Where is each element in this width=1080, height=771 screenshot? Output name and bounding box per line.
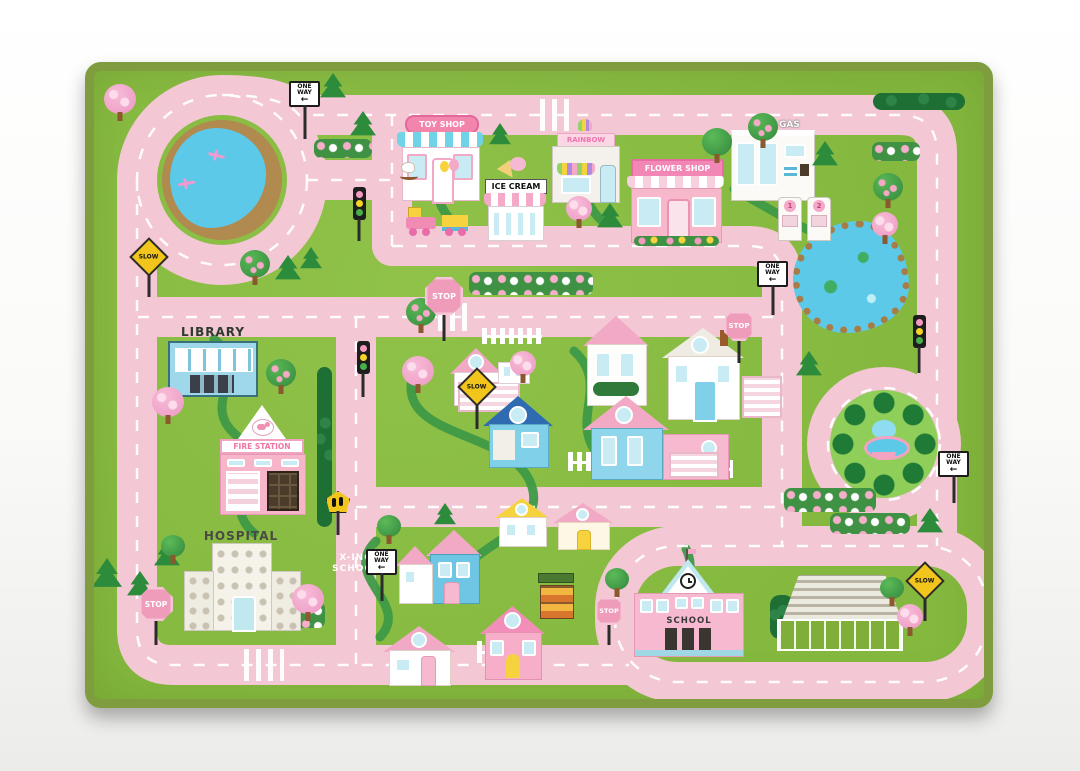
blossom-tree [566,196,592,221]
flower-bed [784,488,876,512]
house [495,498,549,546]
gas-sign: GAS [779,120,800,130]
house [396,530,482,606]
ice-cream-cone-icon [498,157,528,179]
blossom-tree [152,387,184,417]
house [383,626,455,686]
left-arrow-icon: ← [291,97,318,104]
apple-tree [873,173,903,201]
apple-tree [266,359,296,387]
slow-sign: SLOW [132,243,166,271]
toy-shop-awning [397,132,483,147]
balloons [440,159,460,175]
flower-bed [872,142,920,161]
hospital [184,543,299,629]
city-play-rug: TOY SHOP ICE CREAM [85,62,993,708]
apple-tree [240,250,270,278]
tree [702,128,732,156]
hospital-label: HOSPITAL [176,529,306,543]
gas-pump-2: 2 [807,197,831,241]
blossom-tree [292,584,324,614]
tree [161,535,185,557]
gas-station: GAS [731,130,813,194]
rainbow-front [552,146,620,203]
tree [605,568,629,590]
ice-cream-shop: ICE CREAM [484,169,546,239]
fire-station-body [220,454,306,515]
one-way-sign: ONE WAY← [289,81,320,107]
toy-train [406,203,472,237]
school-clock [680,573,696,589]
flower-shop-front [631,188,722,243]
pedestrian-crossing-sign [326,491,350,513]
stop-sign: STOP [138,587,174,621]
rainbow-sign: RAINBOW [557,133,615,147]
crosswalk [244,649,284,681]
rainbow-roof-icecream-icon [578,119,592,131]
gas-pump-1-panel [782,215,798,227]
rainbow-shop: RAINBOW [552,131,618,201]
stop-sign: STOP [594,597,624,625]
ice-cream-awning [484,193,546,206]
blossom-tree [510,351,536,376]
stop-sign: STOP [723,311,755,341]
ice-cream-front [488,206,544,241]
tree [377,515,401,537]
fire-station-dog-icon [252,419,274,436]
blossom-tree [872,212,898,237]
flower-shop-awning [627,176,724,188]
blossom-tree [104,84,136,114]
left-arrow-icon: ← [940,467,967,474]
slow-sign: SLOW [460,373,494,401]
rainbow-awning [557,163,595,175]
flower-bed [830,513,910,534]
gas-pump-1: 1 [778,197,802,241]
gas-pump-2-number: 2 [813,200,825,212]
gas-pump-1-number: 1 [784,200,796,212]
tree [880,577,904,599]
fire-station: FIRE STATION [216,405,308,513]
slow-sign: SLOW [908,567,942,595]
play-rug-photo: TOY SHOP ICE CREAM [0,0,1080,771]
flower-bed [314,139,372,158]
stop-sign: STOP [424,277,464,315]
school-label: SCHOOL [635,616,743,626]
house [575,316,657,408]
school-flag [686,549,688,561]
traffic-light [356,341,370,374]
house [483,396,553,468]
toy-shop: TOY SHOP [397,115,483,199]
ice-cream-sign: ICE CREAM [485,179,547,194]
left-arrow-icon: ← [759,277,786,284]
school-body: SCHOOL [634,593,744,657]
fire-station-band: FIRE STATION [220,439,304,454]
football-field [777,619,903,651]
one-way-sign: ONE WAY← [757,261,788,287]
crosswalk [540,99,570,131]
hedge [873,93,965,110]
house [553,503,613,548]
gas-pump-2-panel [811,215,827,227]
flower-shop-plants [634,236,719,246]
left-arrow-icon: ← [368,565,395,572]
rug-scene: TOY SHOP ICE CREAM [94,71,984,699]
traffic-light [912,315,926,348]
apple-tree [748,113,778,141]
library [168,341,258,397]
produce-stand [538,573,574,621]
one-way-sign: ONE WAY← [938,451,969,477]
flower-shop: FLOWER SHOP [627,155,724,241]
fountain-roundabout [830,390,938,498]
blossom-tree [402,356,434,386]
pond-park [162,120,282,240]
one-way-sign: ONE WAY← [366,549,397,575]
school: SCHOOL [634,559,742,655]
traffic-light [352,187,366,220]
library-label: LIBRARY [156,325,270,339]
house [480,606,545,680]
rocking-horse [400,163,418,177]
gas-building [731,130,815,201]
house [583,396,735,480]
blossom-tree [897,604,923,629]
flower-bed [469,272,593,295]
picket-fence [482,328,542,344]
